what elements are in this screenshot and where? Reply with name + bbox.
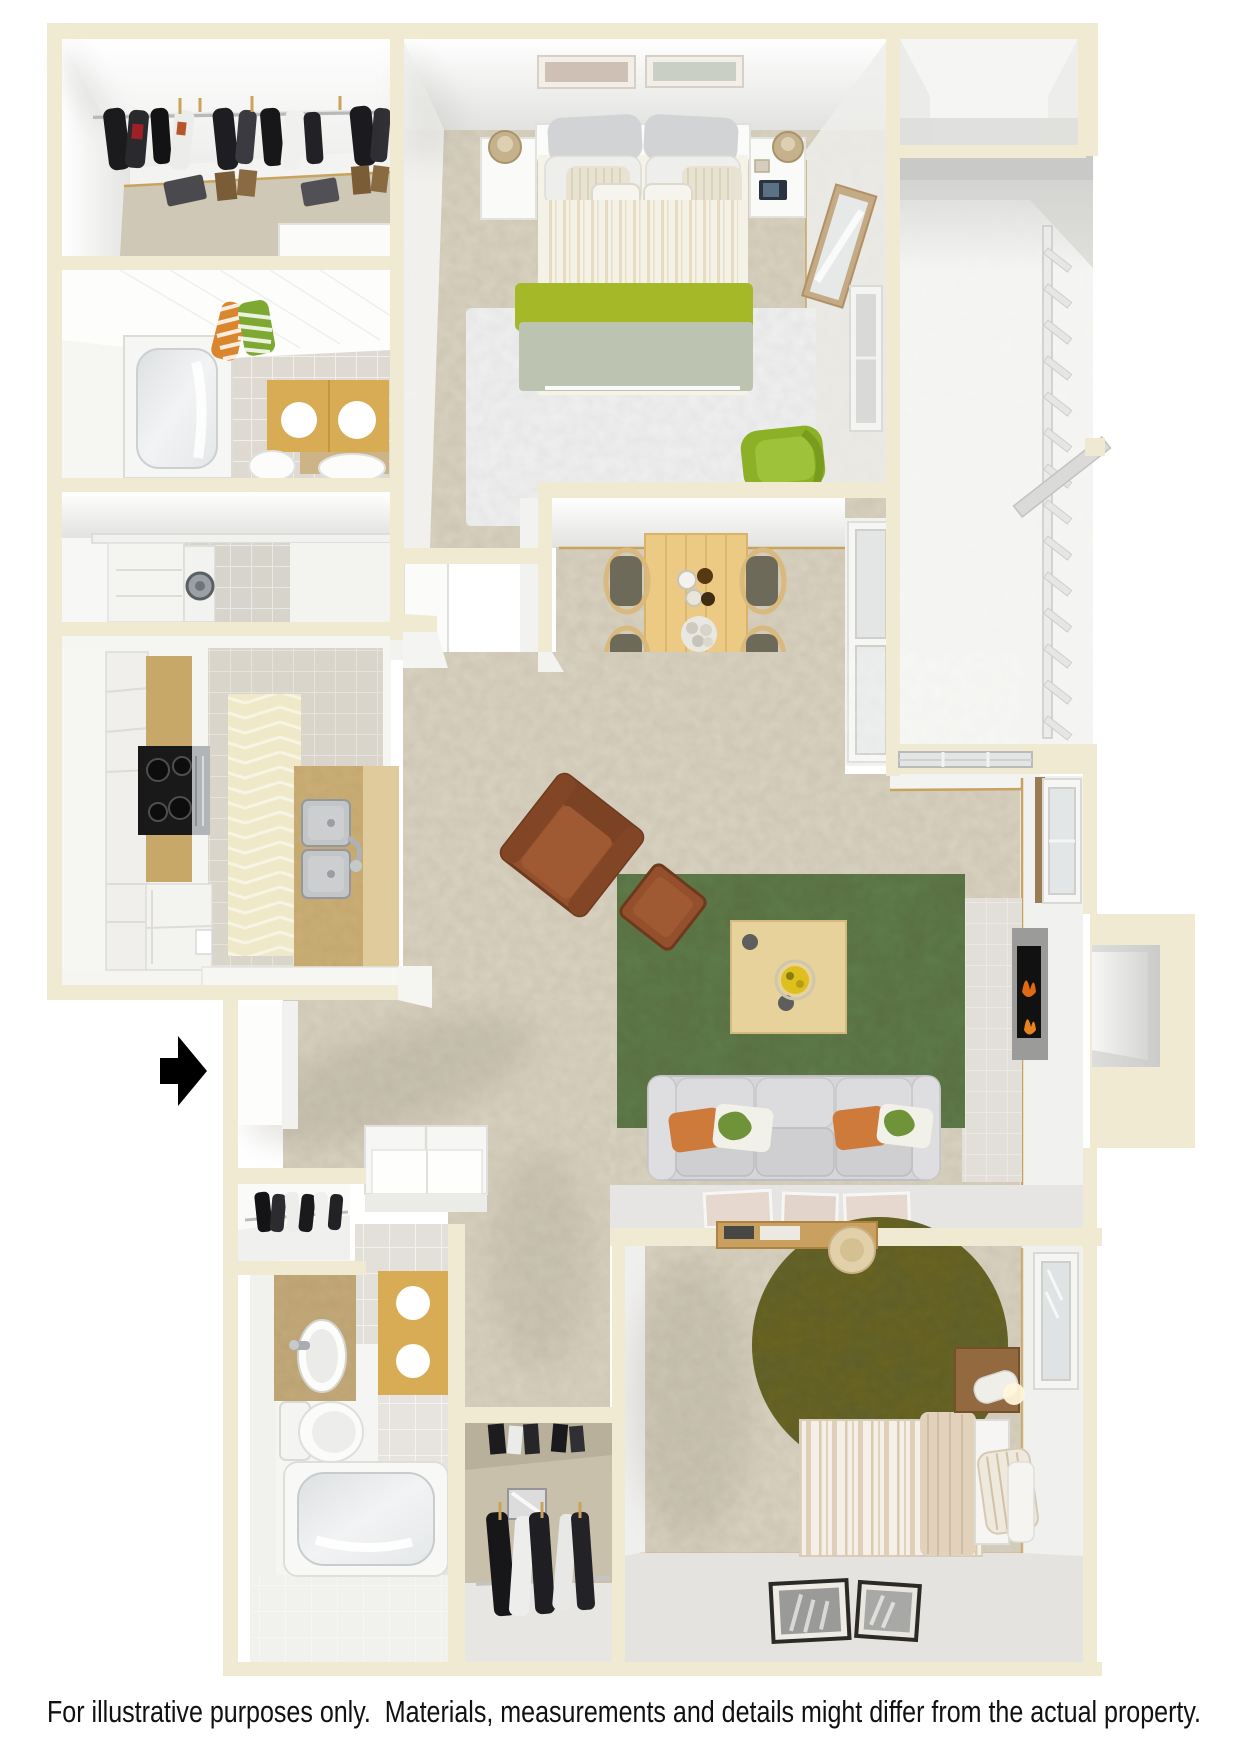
svg-text:For illustrative purposes only: For illustrative purposes only. Material… [47, 1695, 1201, 1729]
